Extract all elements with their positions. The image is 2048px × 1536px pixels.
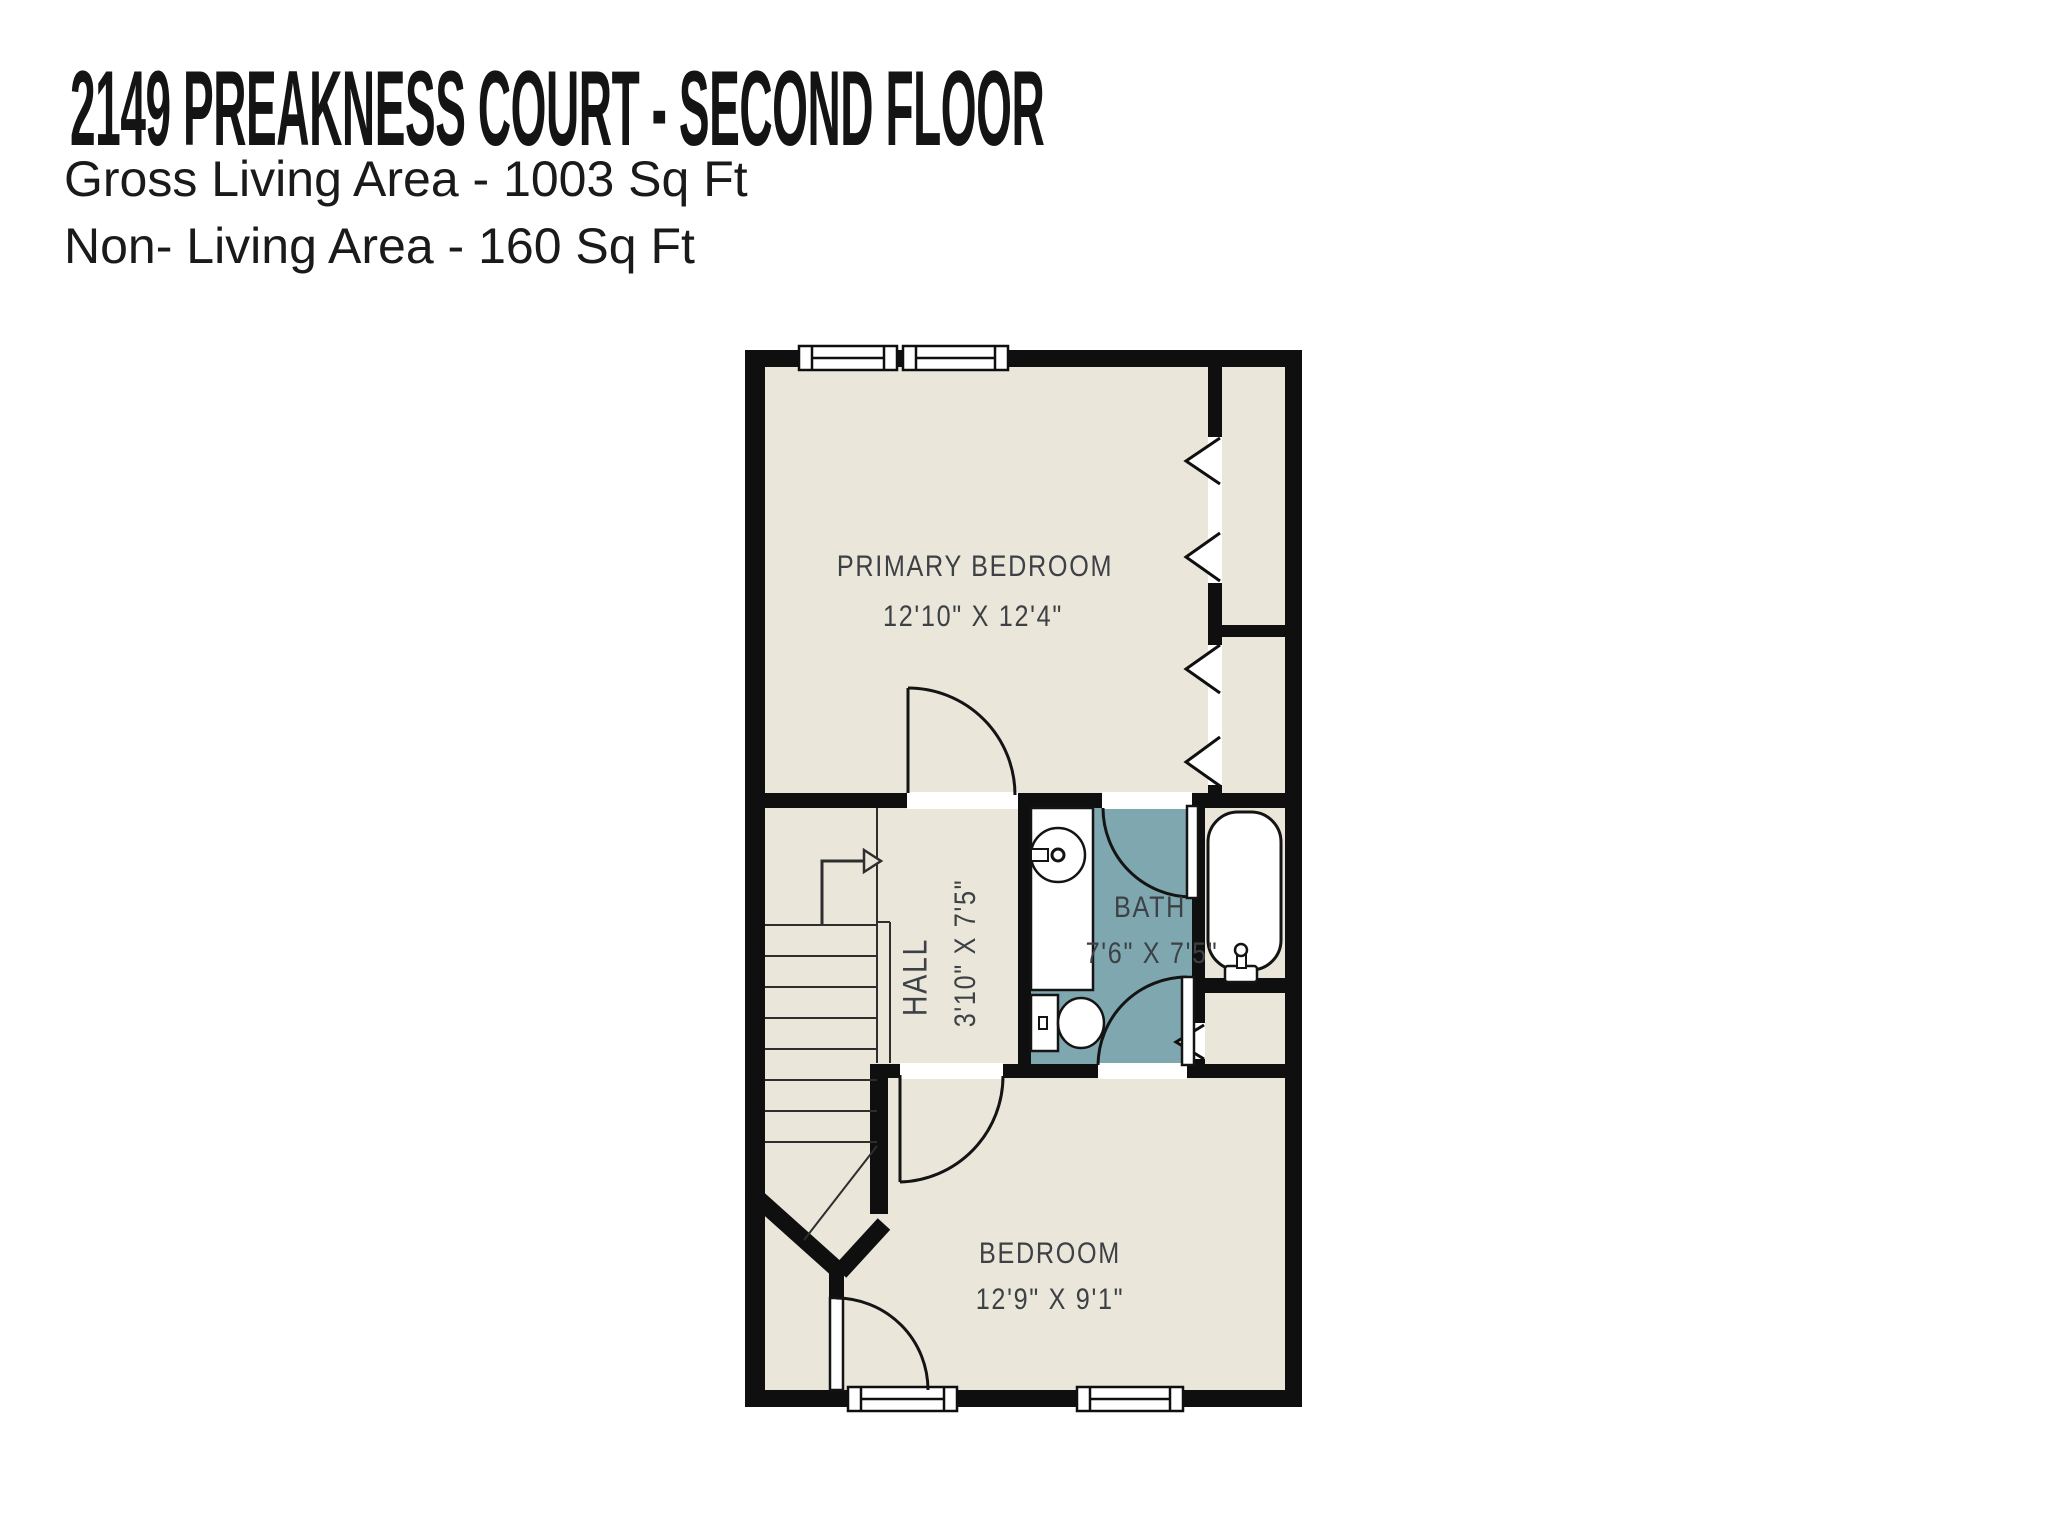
sink-faucet	[1031, 849, 1048, 861]
window-2	[903, 346, 1008, 370]
window-1	[799, 346, 897, 370]
room-label-bedroom: BEDROOM	[979, 1237, 1121, 1271]
window-4	[1077, 1387, 1183, 1411]
room-label-bath: BATH	[1114, 891, 1186, 925]
room-dimensions-hall: 3'10" X 7'5"	[949, 879, 983, 1028]
sink	[1031, 828, 1085, 882]
room-label-primary-bedroom: PRIMARY BEDROOM	[837, 550, 1113, 584]
floorplan-page: 2149 PREAKNESS COURT - SECOND FLOOR Gros…	[0, 0, 2048, 1536]
room-dimensions-bedroom: 12'9" X 9'1"	[976, 1283, 1125, 1317]
toilet	[1031, 995, 1104, 1051]
room-dimensions-primary-bedroom: 12'10" X 12'4"	[883, 600, 1063, 634]
room-label-hall: HALL	[897, 938, 936, 1016]
bathtub	[1208, 812, 1281, 982]
window-3	[848, 1387, 957, 1411]
room-dimensions-bath: 7'6" X 7'5"	[1086, 937, 1219, 971]
